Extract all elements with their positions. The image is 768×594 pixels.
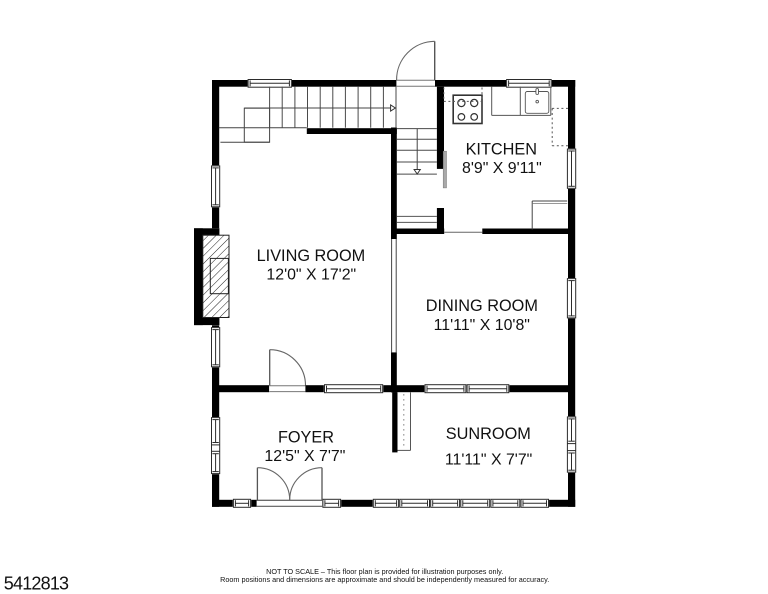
- svg-text:8'9" X 9'11": 8'9" X 9'11": [462, 160, 542, 177]
- svg-text:11'11" X 10'8": 11'11" X 10'8": [434, 317, 530, 334]
- svg-text:11'11" X 7'7": 11'11" X 7'7": [445, 452, 532, 469]
- svg-text:DINING ROOM: DINING ROOM: [426, 297, 538, 315]
- svg-text:SUNROOM: SUNROOM: [446, 425, 531, 443]
- svg-text:5412813: 5412813: [4, 573, 69, 593]
- svg-text:12'0" X 17'2": 12'0" X 17'2": [266, 267, 356, 284]
- svg-text:LIVING ROOM: LIVING ROOM: [257, 247, 366, 265]
- svg-text:FOYER: FOYER: [278, 429, 334, 447]
- svg-text:12'5" X 7'7": 12'5" X 7'7": [264, 448, 345, 465]
- svg-text:KITCHEN: KITCHEN: [466, 141, 537, 159]
- svg-text:Room positions and dimensions: Room positions and dimensions are approx…: [220, 575, 549, 584]
